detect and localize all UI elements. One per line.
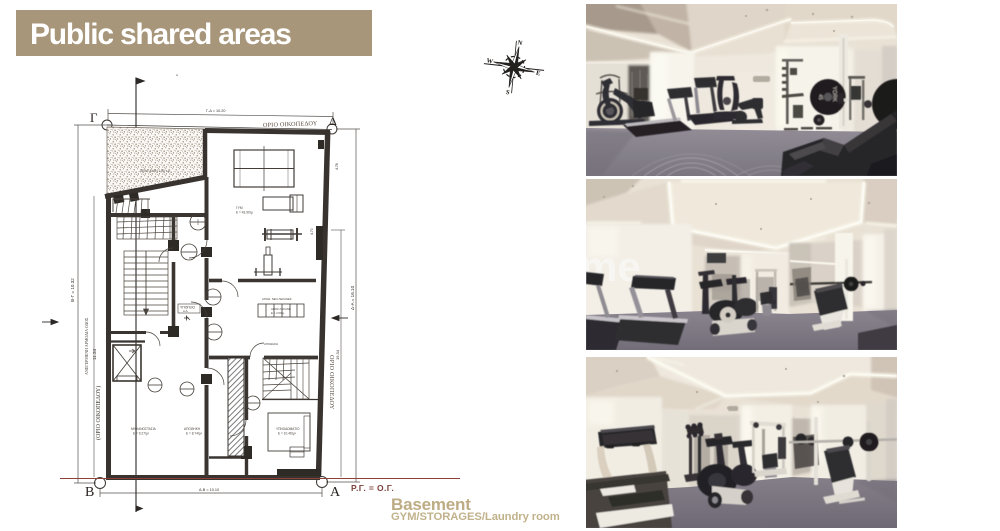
svg-text:ΜΗΧΑΝΟΣΤΑΣΙΑ: ΜΗΧΑΝΟΣΤΑΣΙΑ — [131, 427, 157, 431]
svg-text:ΑΠΟΘΗΚΗ: ΑΠΟΘΗΚΗ — [264, 342, 278, 346]
svg-text:Δ: Δ — [329, 114, 337, 128]
svg-text:Ε = 10.46τμ²: Ε = 10.46τμ² — [278, 432, 296, 436]
svg-text:ΧΕΙΜ. ΑΥΛΗ 1,90 τ.μ: ΧΕΙΜ. ΑΥΛΗ 1,90 τ.μ — [140, 169, 170, 173]
svg-text:ΑΠΟΘΗΚΗ: ΑΠΟΘΗΚΗ — [184, 427, 201, 431]
svg-text:ΥΠΝΟΔΩΜΑΤΙΟ: ΥΠΝΟΔΩΜΑΤΙΟ — [276, 427, 300, 431]
svg-text:ΟΡΙΟ ΟΙΚΟΠΕΔΟΥ: ΟΡΙΟ ΟΙΚΟΠΕΔΟΥ — [328, 355, 335, 410]
svg-text:Ε = 9.27τμ²: Ε = 9.27τμ² — [133, 432, 149, 436]
svg-text:Γ: Γ — [90, 110, 98, 125]
svg-text:11.34: 11.34 — [92, 348, 97, 360]
svg-text:4.78: 4.78 — [335, 163, 339, 170]
svg-text:Γ-Δ = 10.20: Γ-Δ = 10.20 — [206, 109, 226, 113]
svg-text:(ΟΡΙΟ ΟΙΚΟΠΕΔΟΥ): (ΟΡΙΟ ΟΙΚΟΠΕΔΟΥ) — [95, 386, 102, 440]
svg-text:ΑΠΟΘ. ΝΕΟ ΛΕΚΑΝΕΣ: ΑΠΟΘ. ΝΕΟ ΛΕΚΑΝΕΣ — [262, 297, 292, 301]
svg-text:B: B — [85, 485, 94, 500]
svg-text:Ε = 4.50τμ: Ε = 4.50τμ — [271, 311, 285, 315]
svg-text:A: A — [176, 73, 178, 77]
svg-text:Δ-A = 16.10: Δ-A = 16.10 — [350, 285, 355, 310]
svg-text:ΓΥΜ: ΓΥΜ — [236, 206, 243, 210]
svg-text:ΟΡΙΟ ΟΙΚΟΠΕΔΟΥ: ΟΡΙΟ ΟΙΚΟΠΕΔΟΥ — [263, 120, 318, 129]
svg-text:Ε = 43.90τμ: Ε = 43.90τμ — [236, 211, 253, 215]
svg-text:S: S — [505, 89, 511, 97]
svg-text:4.70: 4.70 — [310, 228, 314, 235]
svg-text:A: A — [330, 485, 341, 500]
svg-text:E: E — [535, 70, 541, 78]
svg-text:N: N — [517, 39, 524, 47]
svg-text:ΑΝΕΓΕΡΜΕΝΗ ΑΡΜΟΔΙΑ ΟΔΟΣ: ΑΝΕΓΕΡΜΕΝΗ ΑΡΜΟΔΙΑ ΟΔΟΣ — [84, 317, 89, 375]
svg-text:Α.Α.: Α.Α. — [183, 309, 189, 313]
svg-text:B-Γ = 10.32: B-Γ = 10.32 — [70, 278, 75, 302]
svg-text:A-B = 10.10: A-B = 10.10 — [199, 488, 219, 492]
svg-text:Ε = 8.74τμ²: Ε = 8.74τμ² — [186, 432, 202, 436]
